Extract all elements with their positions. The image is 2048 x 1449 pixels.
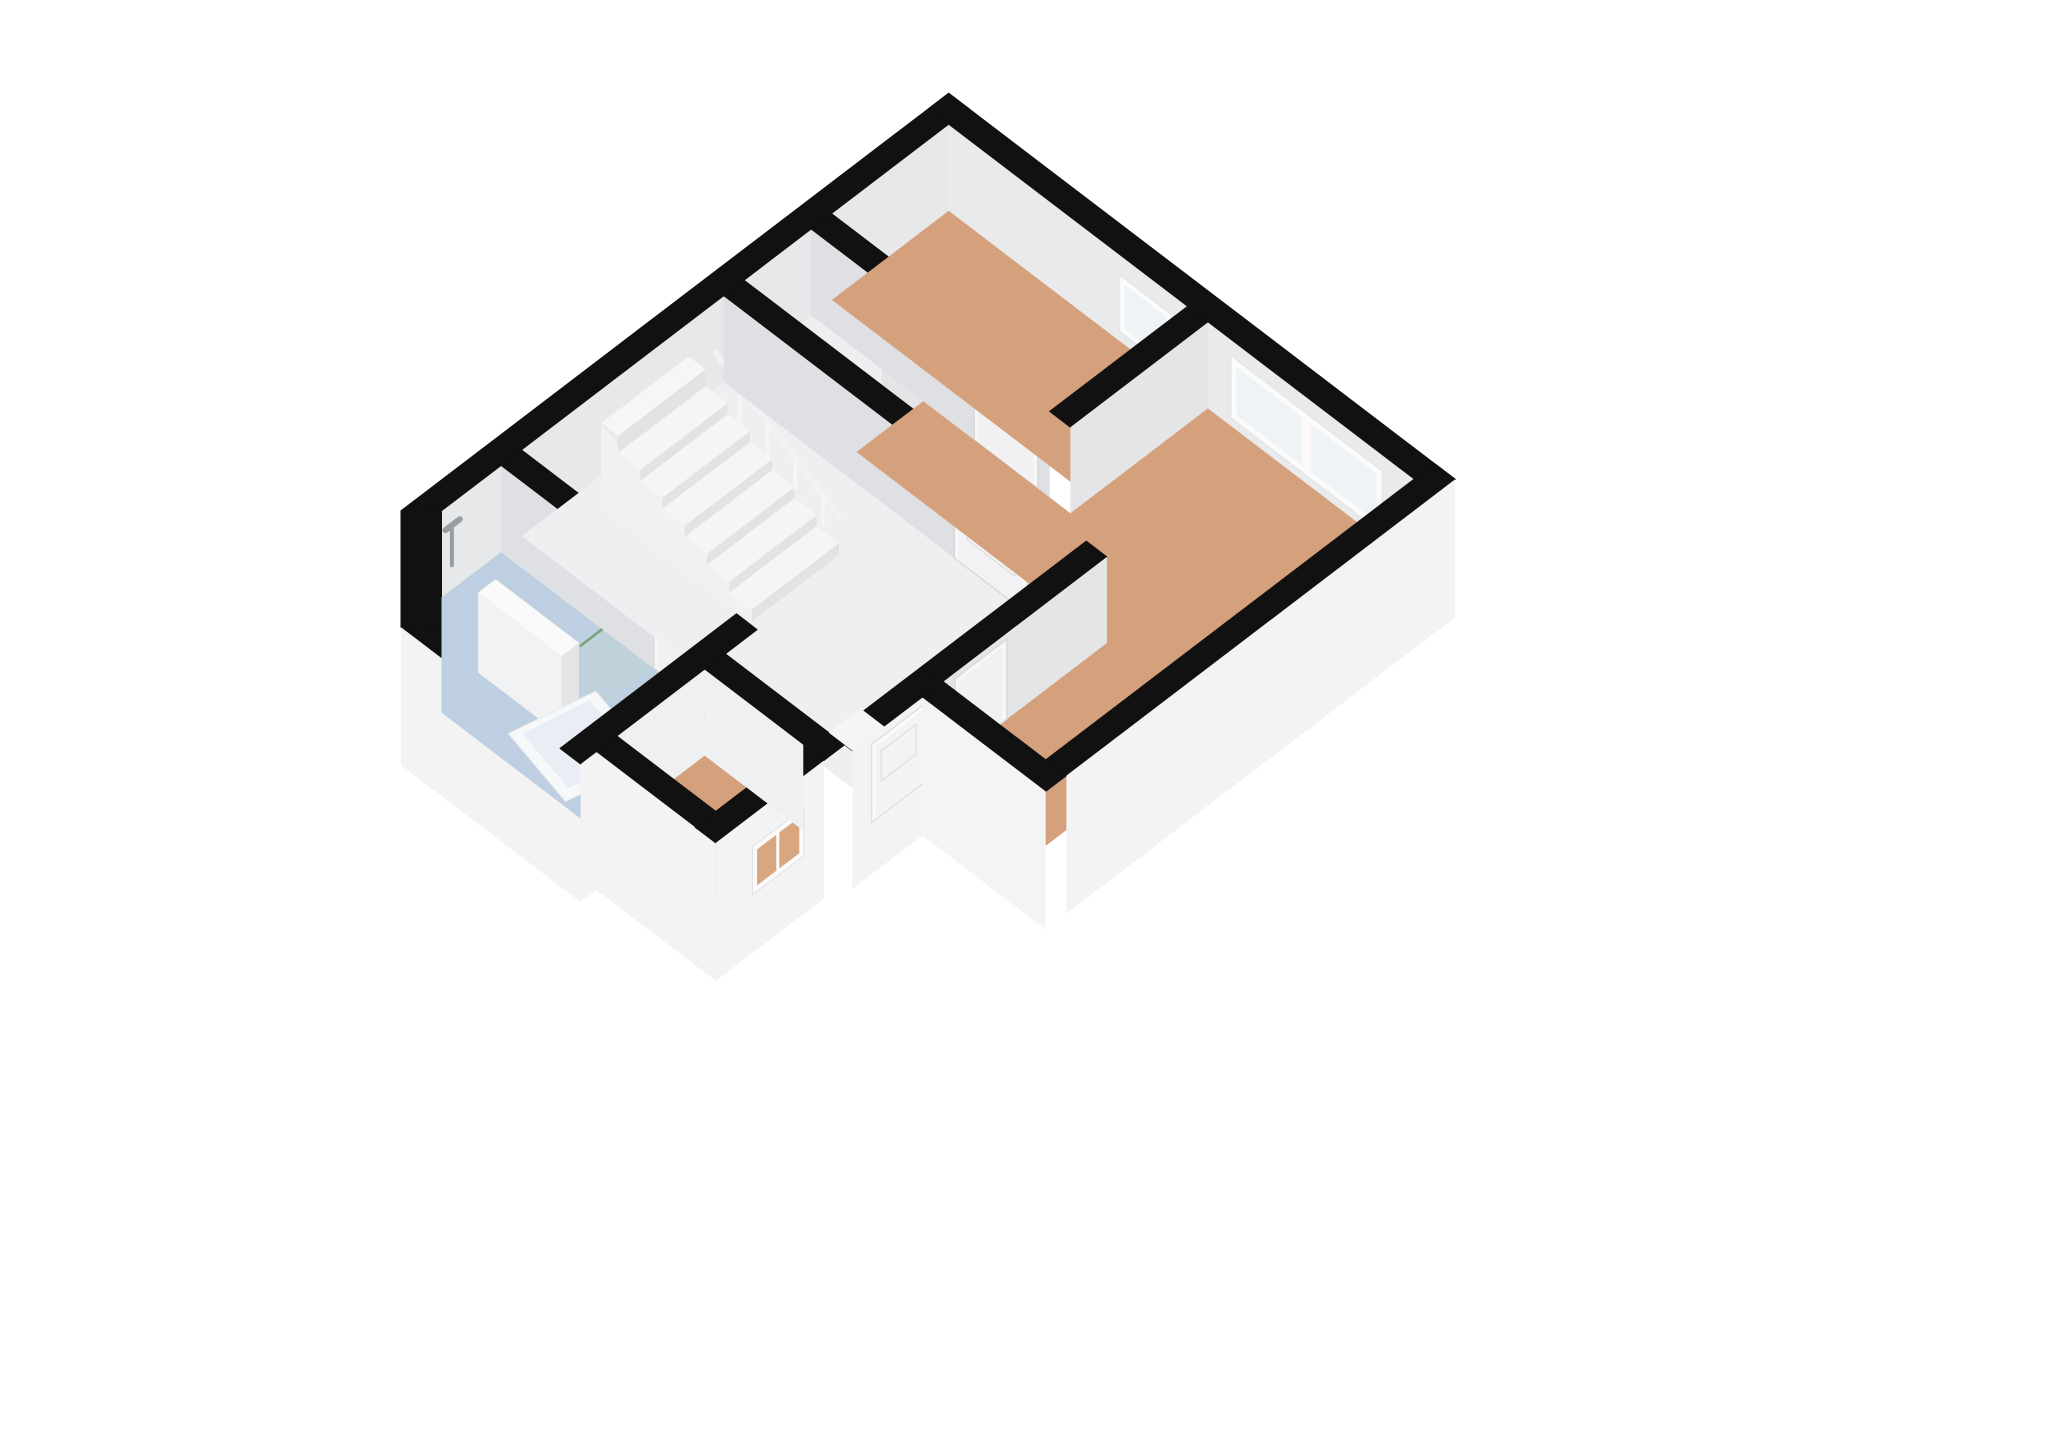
floorplan-3d-render xyxy=(0,0,2048,1449)
wall-top-chamfer xyxy=(401,511,442,627)
floor-plan-viewport xyxy=(0,0,2048,1449)
